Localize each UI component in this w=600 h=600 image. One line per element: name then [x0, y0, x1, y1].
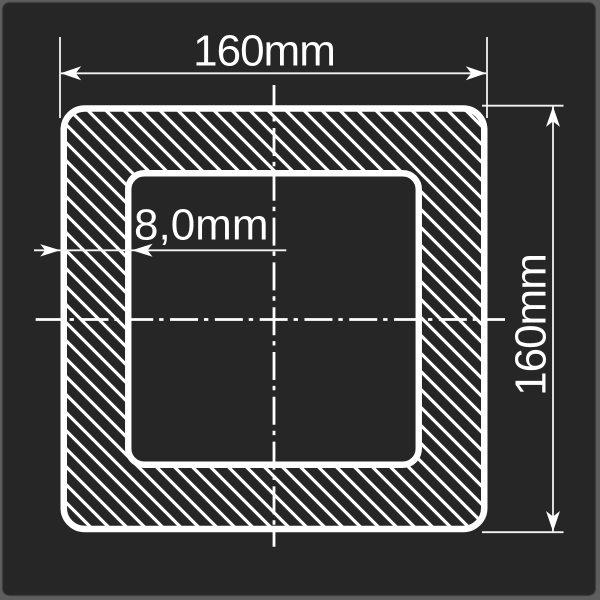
svg-text:8,0mm: 8,0mm	[134, 201, 268, 250]
svg-text:160mm: 160mm	[507, 254, 556, 396]
svg-text:160mm: 160mm	[193, 27, 335, 76]
